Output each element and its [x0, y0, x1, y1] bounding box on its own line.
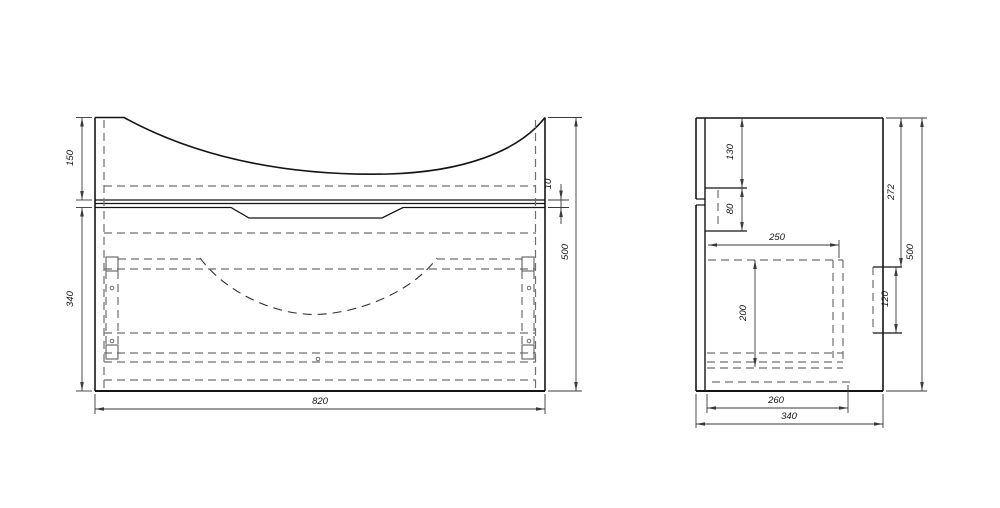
dim-front-drawer-height: 340 [65, 290, 76, 307]
runner-bracket-bottom-left [106, 345, 118, 359]
dim-side-drawer-depth: 250 [768, 232, 786, 243]
dim-side-rail-offset: 130 [725, 143, 736, 160]
dim-side-total-depth: 340 [781, 411, 798, 422]
dim-side-rail-height: 80 [725, 203, 736, 214]
dim-side-cutout-offset: 272 [886, 183, 897, 201]
dim-side-cutout-height: 120 [880, 290, 891, 307]
screw-hole [527, 339, 531, 343]
runner-bracket-bottom-right [522, 345, 534, 359]
screw-hole [527, 286, 531, 290]
screw-hole [110, 339, 114, 343]
dim-side-bottom-depth: 260 [767, 395, 785, 406]
front-view: 150 340 820 10 500 [65, 118, 582, 415]
screw-hole [316, 357, 320, 361]
technical-drawing: 150 340 820 10 500 [0, 0, 1000, 508]
drawing-canvas: 150 340 820 10 500 [0, 0, 1000, 508]
dim-side-total-height: 500 [905, 243, 916, 260]
dim-side-inner-height: 200 [738, 304, 749, 322]
dim-front-top-height: 150 [65, 149, 76, 166]
drawer-handle-recess-line [95, 208, 545, 219]
hidden-bowl-curve [200, 258, 437, 315]
screw-hole [110, 286, 114, 290]
sink-top-curve [95, 118, 545, 175]
dim-front-width: 820 [312, 396, 329, 407]
side-view: 130 80 250 200 120 272 500 260 340 [696, 118, 927, 428]
dim-front-gap: 10 [543, 178, 554, 189]
dim-front-total-height: 500 [560, 243, 571, 260]
